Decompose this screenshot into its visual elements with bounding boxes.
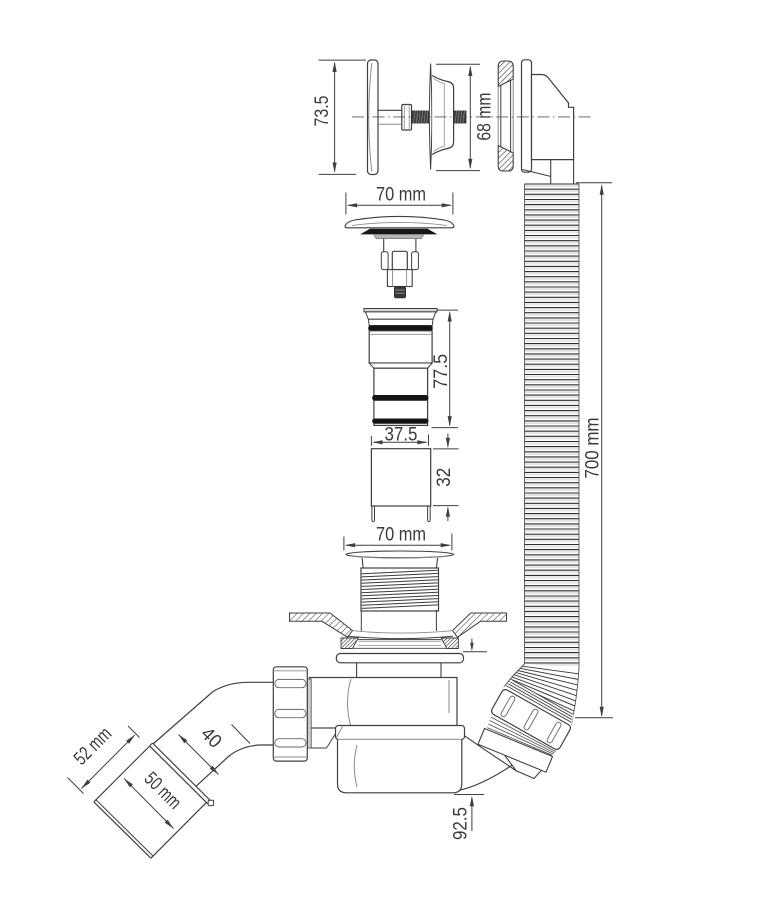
svg-text:32: 32 [434, 468, 455, 487]
svg-text:37.5: 37.5 [385, 425, 418, 446]
svg-text:700 mm: 700 mm [583, 418, 604, 479]
svg-text:70 mm: 70 mm [376, 524, 426, 545]
svg-text:77.5: 77.5 [431, 354, 452, 389]
svg-text:70 mm: 70 mm [376, 184, 426, 205]
svg-text:73.5: 73.5 [312, 96, 333, 127]
svg-text:92.5: 92.5 [450, 807, 471, 840]
